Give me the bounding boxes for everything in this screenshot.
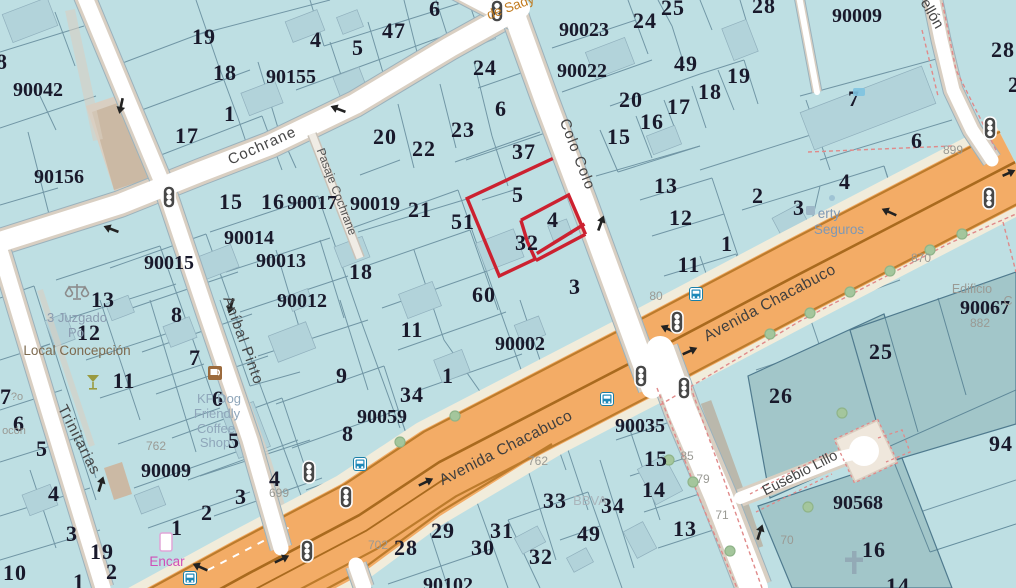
svg-text:16: 16 xyxy=(862,537,886,562)
svg-text:1: 1 xyxy=(224,101,236,126)
svg-text:3: 3 xyxy=(569,274,581,299)
svg-text:24: 24 xyxy=(473,55,497,80)
svg-text:2: 2 xyxy=(752,183,764,208)
svg-text:23: 23 xyxy=(451,117,475,142)
svg-text:26: 26 xyxy=(769,383,793,408)
svg-text:6: 6 xyxy=(429,0,441,21)
svg-text:70: 70 xyxy=(780,533,794,547)
svg-text:7: 7 xyxy=(189,345,201,370)
svg-text:870: 870 xyxy=(911,251,931,265)
svg-text:Friendly: Friendly xyxy=(194,406,241,421)
svg-text:90155: 90155 xyxy=(266,66,316,88)
svg-text:33: 33 xyxy=(543,488,567,513)
svg-text:13: 13 xyxy=(91,287,115,312)
svg-text:2: 2 xyxy=(106,559,118,584)
svg-text:18: 18 xyxy=(213,60,237,85)
svg-text:Edificio: Edificio xyxy=(952,282,992,296)
svg-text:12: 12 xyxy=(669,205,693,230)
svg-text:11: 11 xyxy=(113,368,136,393)
svg-text:5: 5 xyxy=(36,436,48,461)
svg-text:60: 60 xyxy=(472,282,496,307)
svg-text:11: 11 xyxy=(678,252,701,277)
svg-text:4: 4 xyxy=(310,27,322,52)
svg-text:4: 4 xyxy=(547,207,559,232)
svg-text:25: 25 xyxy=(661,0,685,20)
svg-text:90035: 90035 xyxy=(615,415,665,437)
svg-text:6: 6 xyxy=(911,128,923,153)
svg-text:90019: 90019 xyxy=(350,193,400,215)
svg-text:15: 15 xyxy=(219,189,243,214)
svg-text:90014: 90014 xyxy=(224,227,274,249)
svg-text:5: 5 xyxy=(512,182,524,207)
svg-text:90017: 90017 xyxy=(287,192,337,214)
svg-text:17: 17 xyxy=(175,123,199,148)
svg-text:4: 4 xyxy=(839,169,851,194)
svg-text:erty: erty xyxy=(818,206,841,221)
svg-text:KF Dog: KF Dog xyxy=(197,391,241,406)
svg-text:2: 2 xyxy=(1008,72,1016,97)
svg-text:C: C xyxy=(1003,294,1012,308)
svg-text:30: 30 xyxy=(471,535,495,560)
svg-text:16: 16 xyxy=(640,109,664,134)
svg-text:80: 80 xyxy=(649,289,663,303)
svg-text:28: 28 xyxy=(394,535,418,560)
svg-text:28: 28 xyxy=(991,37,1015,62)
svg-text:762: 762 xyxy=(528,454,548,468)
svg-text:8: 8 xyxy=(171,302,183,327)
svg-text:18: 18 xyxy=(349,259,373,284)
svg-text:4: 4 xyxy=(48,481,60,506)
svg-text:5: 5 xyxy=(352,35,364,60)
svg-text:94: 94 xyxy=(989,431,1013,456)
svg-text:3: 3 xyxy=(235,484,247,509)
svg-text:699: 699 xyxy=(269,486,289,500)
svg-text:3: 3 xyxy=(793,195,805,220)
svg-text:51: 51 xyxy=(451,209,475,234)
svg-text:90042: 90042 xyxy=(13,79,63,101)
svg-text:19: 19 xyxy=(727,63,751,88)
svg-text:49: 49 xyxy=(674,51,698,76)
svg-text:BBVA: BBVA xyxy=(573,493,607,508)
svg-text:90568: 90568 xyxy=(833,492,883,514)
svg-text:90015: 90015 xyxy=(144,252,194,274)
svg-text:90156: 90156 xyxy=(34,166,84,188)
svg-text:762: 762 xyxy=(146,439,166,453)
svg-text:37: 37 xyxy=(512,139,536,164)
svg-text:8: 8 xyxy=(0,49,8,74)
svg-text:32: 32 xyxy=(515,230,539,255)
svg-text:32: 32 xyxy=(529,544,553,569)
svg-text:Coffee: Coffee xyxy=(197,421,235,436)
svg-text:1: 1 xyxy=(73,569,85,588)
svg-text:14: 14 xyxy=(886,573,910,588)
svg-text:6: 6 xyxy=(495,96,507,121)
svg-text:Shop: Shop xyxy=(200,435,230,450)
svg-text:14: 14 xyxy=(642,477,666,502)
svg-text:90059: 90059 xyxy=(357,406,407,428)
svg-text:3: 3 xyxy=(66,521,78,546)
svg-text:90013: 90013 xyxy=(256,250,306,272)
svg-text:90009: 90009 xyxy=(832,5,882,27)
svg-text:Seguros: Seguros xyxy=(814,222,865,237)
svg-text:20: 20 xyxy=(619,87,643,112)
svg-text:18: 18 xyxy=(698,79,722,104)
svg-text:90102: 90102 xyxy=(423,574,473,588)
svg-text:ocón: ocón xyxy=(2,425,26,437)
svg-text:19: 19 xyxy=(192,24,216,49)
svg-text:21: 21 xyxy=(408,197,432,222)
svg-text:1: 1 xyxy=(721,231,733,256)
svg-text:Po: Po xyxy=(68,325,84,340)
svg-text:11: 11 xyxy=(401,317,424,342)
svg-text:22: 22 xyxy=(412,136,436,161)
svg-text:90002: 90002 xyxy=(495,333,545,355)
svg-text:15: 15 xyxy=(607,124,631,149)
svg-text:9: 9 xyxy=(336,363,348,388)
svg-text:90023: 90023 xyxy=(559,19,609,41)
svg-text:899: 899 xyxy=(943,143,963,157)
svg-text:13: 13 xyxy=(673,516,697,541)
svg-text:15: 15 xyxy=(644,446,668,471)
svg-text:Encar: Encar xyxy=(149,554,185,569)
svg-text:71: 71 xyxy=(715,508,729,522)
svg-text:28: 28 xyxy=(752,0,776,18)
svg-text:1: 1 xyxy=(171,515,183,540)
svg-text:25: 25 xyxy=(869,339,893,364)
svg-text:34: 34 xyxy=(400,382,424,407)
svg-text:882: 882 xyxy=(970,316,990,330)
svg-text:90012: 90012 xyxy=(277,290,327,312)
svg-text:47: 47 xyxy=(382,18,406,43)
svg-text:?o: ?o xyxy=(11,391,23,403)
svg-text:17: 17 xyxy=(667,94,691,119)
svg-text:29: 29 xyxy=(431,518,455,543)
svg-text:49: 49 xyxy=(577,521,601,546)
svg-text:8: 8 xyxy=(342,421,354,446)
svg-text:13: 13 xyxy=(654,173,678,198)
svg-text:702: 702 xyxy=(368,538,388,552)
svg-text:16: 16 xyxy=(261,189,285,214)
svg-text:Local Concepción: Local Concepción xyxy=(23,343,130,358)
svg-text:85: 85 xyxy=(680,449,694,463)
svg-text:24: 24 xyxy=(633,8,657,33)
svg-text:79: 79 xyxy=(696,472,710,486)
svg-text:1: 1 xyxy=(442,363,454,388)
svg-text:90009: 90009 xyxy=(141,460,191,482)
svg-text:90022: 90022 xyxy=(557,60,607,82)
svg-text:3 Juzgado: 3 Juzgado xyxy=(47,310,107,325)
svg-text:10: 10 xyxy=(3,560,27,585)
svg-text:20: 20 xyxy=(373,124,397,149)
svg-text:2: 2 xyxy=(201,500,213,525)
